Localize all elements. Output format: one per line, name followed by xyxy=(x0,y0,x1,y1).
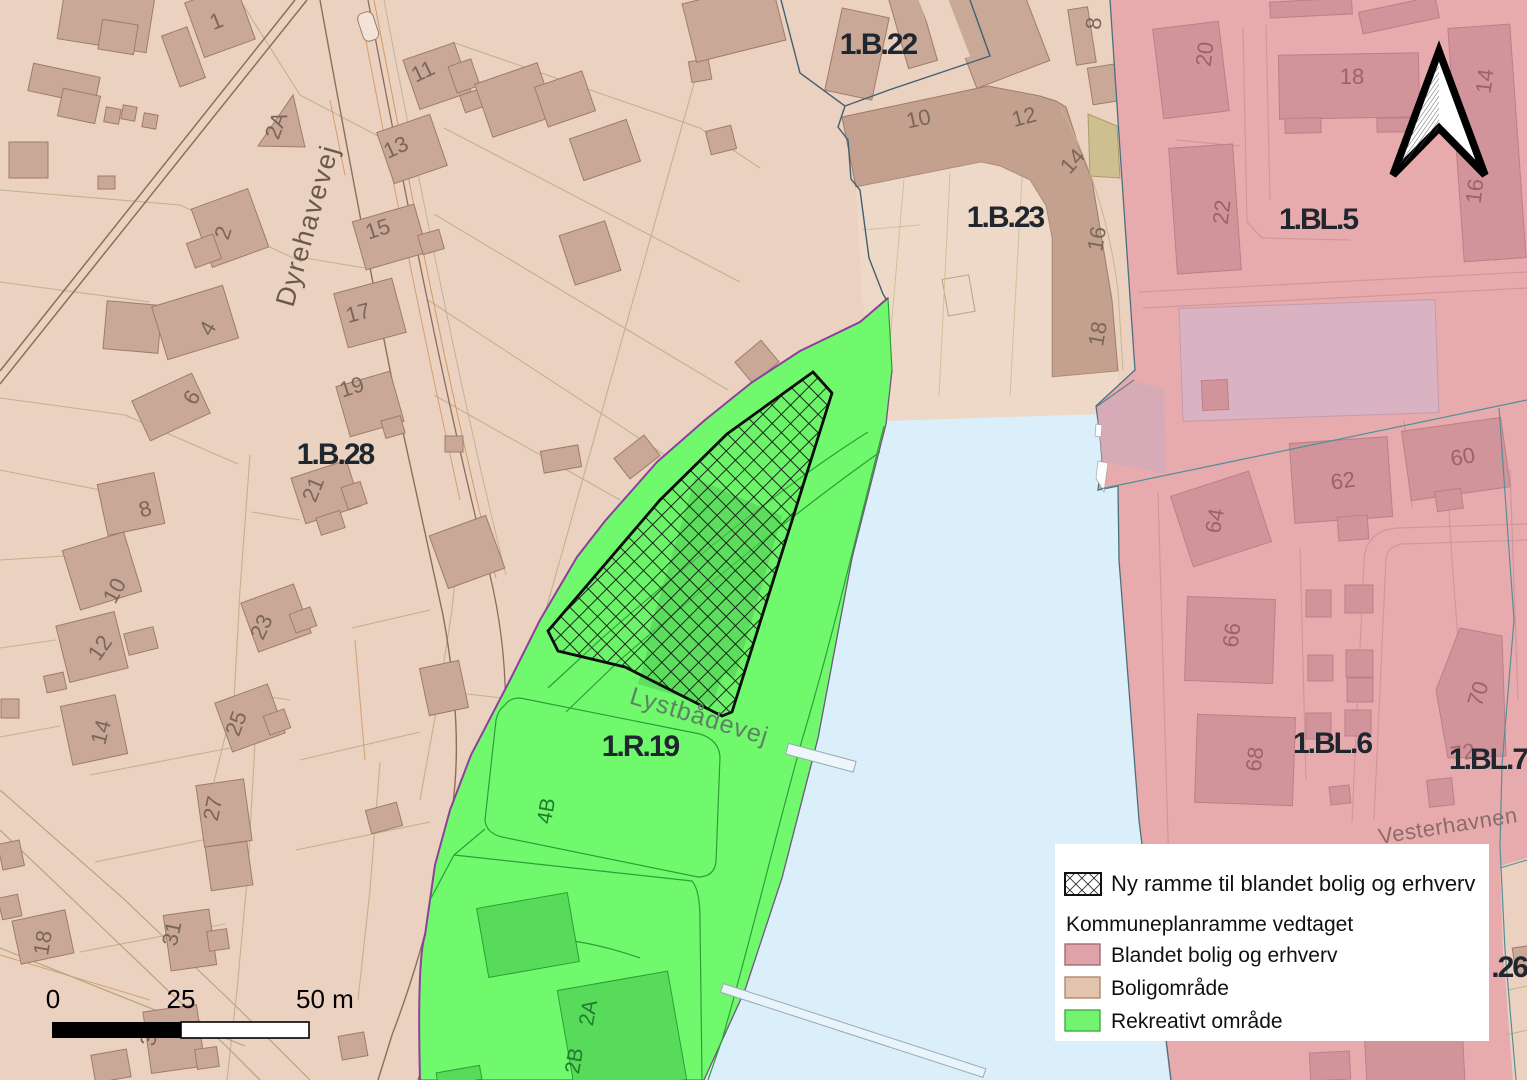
svg-text:10: 10 xyxy=(904,104,933,134)
svg-text:Boligområde: Boligområde xyxy=(1111,977,1229,1000)
svg-text:31: 31 xyxy=(157,919,187,948)
svg-text:22: 22 xyxy=(1208,198,1236,225)
svg-text:18: 18 xyxy=(28,928,57,956)
svg-text:1.B.23: 1.B.23 xyxy=(967,201,1045,234)
svg-text:62: 62 xyxy=(1329,466,1357,494)
svg-text:1.B.22: 1.B.22 xyxy=(840,28,918,61)
svg-text:66: 66 xyxy=(1218,621,1246,648)
svg-text:1.R.19: 1.R.19 xyxy=(602,730,680,763)
svg-text:20: 20 xyxy=(1191,40,1219,67)
svg-text:2B: 2B xyxy=(561,1046,588,1075)
svg-text:Kommuneplanramme vedtaget: Kommuneplanramme vedtaget xyxy=(1066,913,1353,936)
svg-text:Blandet bolig og erhverv: Blandet bolig og erhverv xyxy=(1111,944,1338,967)
svg-text:68: 68 xyxy=(1241,745,1269,772)
svg-text:Ny ramme til blandet bolig og: Ny ramme til blandet bolig og erhverv xyxy=(1111,871,1475,896)
svg-text:1.BL.6: 1.BL.6 xyxy=(1293,727,1372,760)
svg-text:0: 0 xyxy=(46,984,60,1014)
svg-text:1.BL.7: 1.BL.7 xyxy=(1449,743,1527,776)
svg-text:64: 64 xyxy=(1200,506,1229,534)
svg-text:1.B.28: 1.B.28 xyxy=(297,438,375,471)
svg-text:4B: 4B xyxy=(533,796,560,825)
svg-text:60: 60 xyxy=(1448,442,1476,471)
svg-text:2A: 2A xyxy=(575,998,602,1027)
svg-text:Rekreativt område: Rekreativt område xyxy=(1111,1010,1283,1033)
svg-text:1.BL.5: 1.BL.5 xyxy=(1279,203,1358,236)
svg-text:16: 16 xyxy=(1082,224,1111,252)
svg-text:25: 25 xyxy=(167,984,196,1014)
svg-text:16: 16 xyxy=(1461,177,1489,204)
svg-text:18: 18 xyxy=(1340,64,1364,89)
svg-text:8: 8 xyxy=(1081,16,1107,30)
svg-text:27: 27 xyxy=(198,794,228,823)
svg-text:14: 14 xyxy=(1471,67,1499,94)
svg-text:18: 18 xyxy=(1083,319,1112,347)
svg-text:.26: .26 xyxy=(1491,951,1527,984)
svg-text:50 m: 50 m xyxy=(296,984,354,1014)
